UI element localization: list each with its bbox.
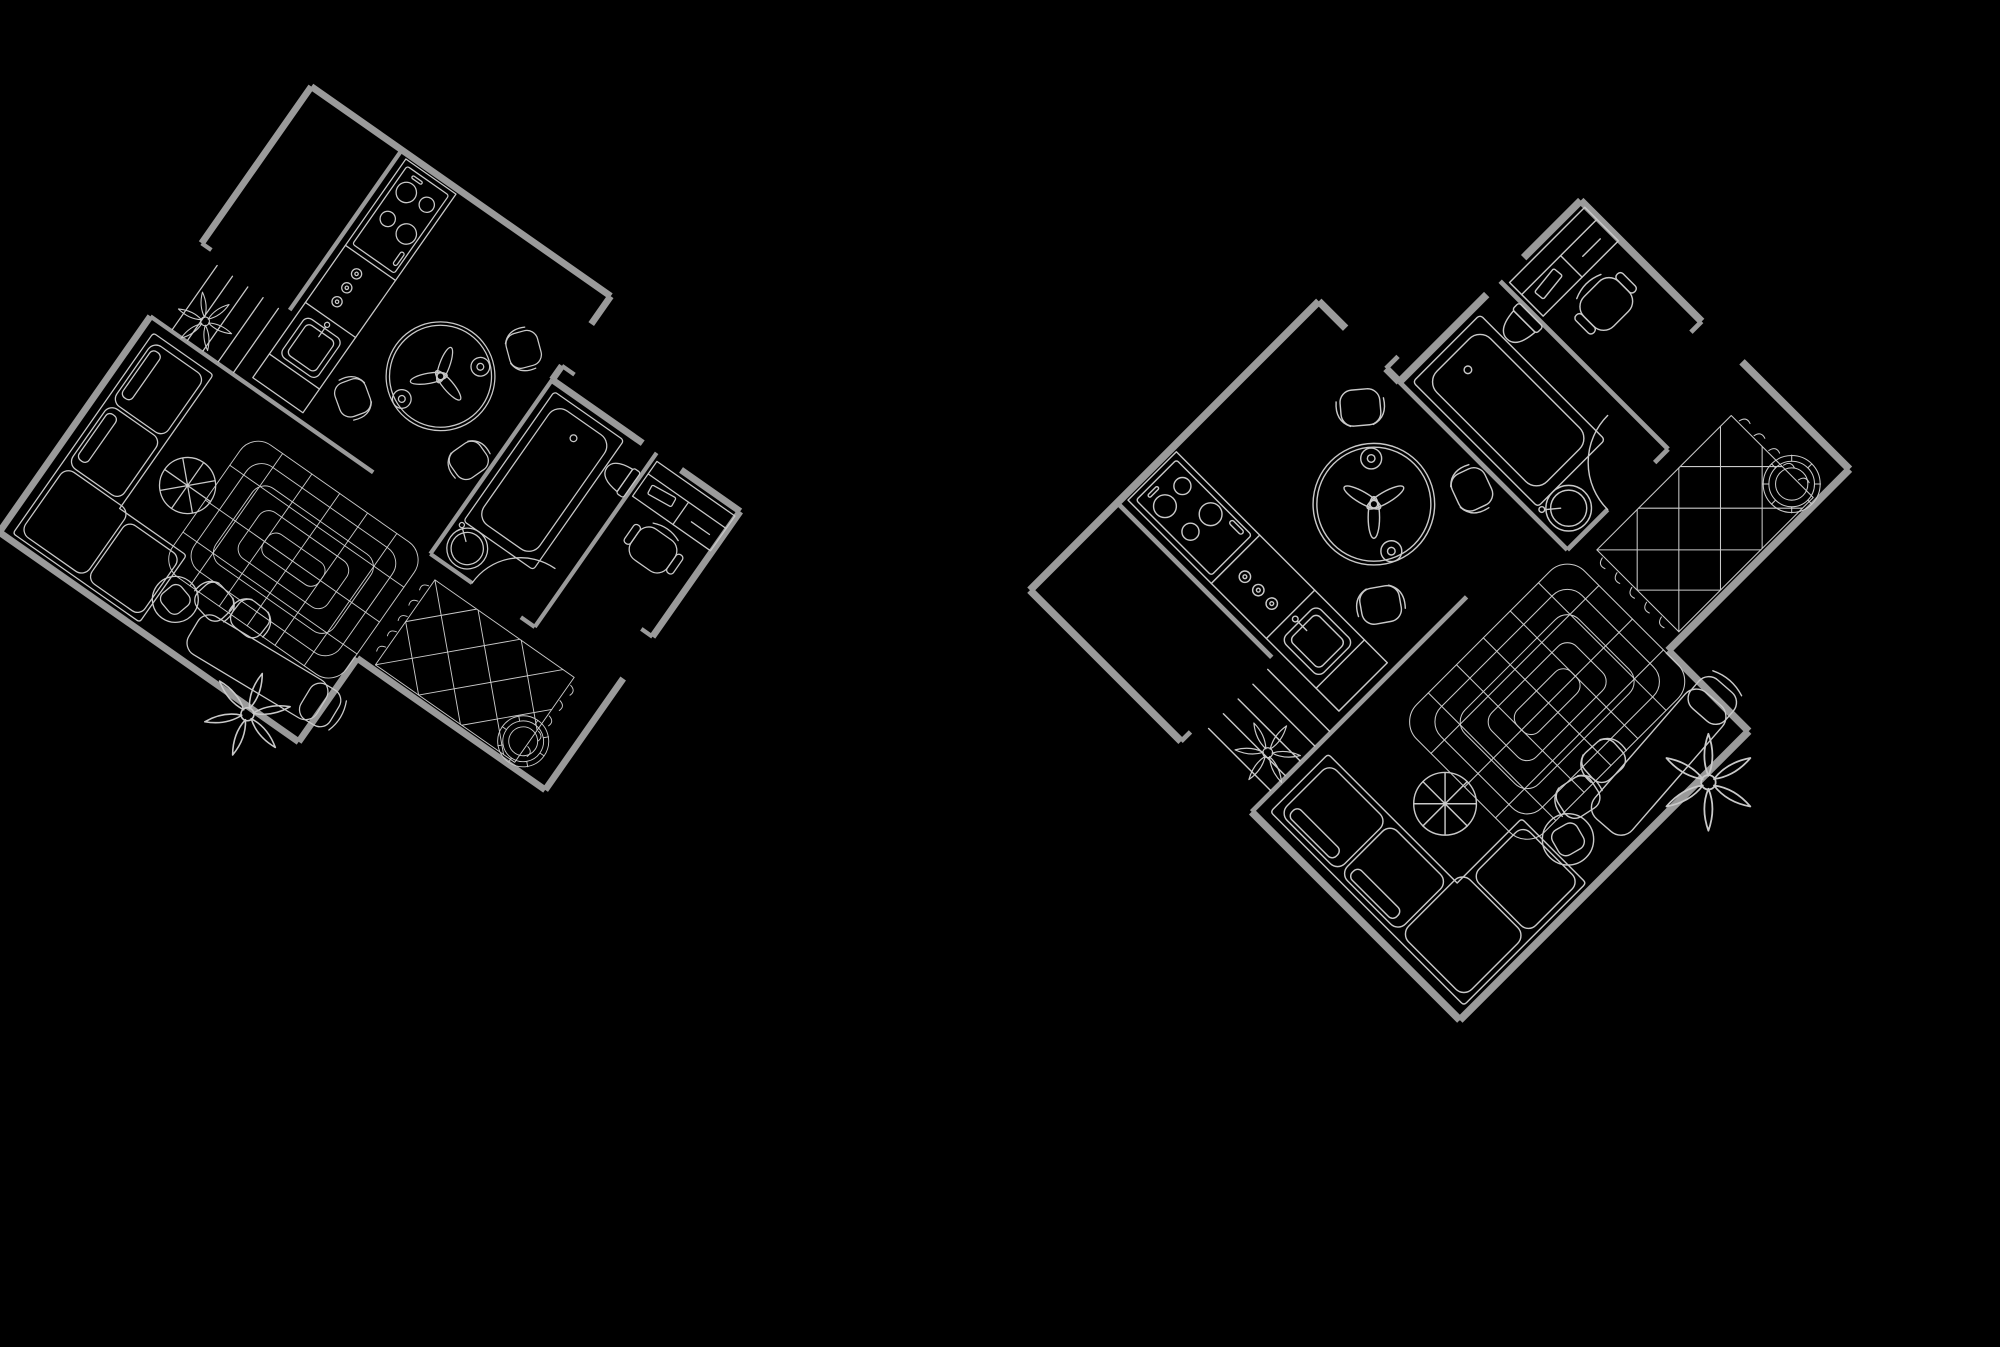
blueprint-canvas: [0, 0, 2000, 1347]
blueprint-stage: [0, 0, 2000, 1347]
background: [0, 0, 2000, 1347]
